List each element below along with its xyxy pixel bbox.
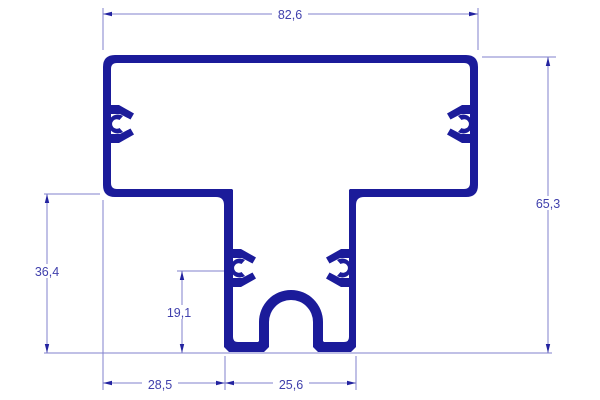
arrowhead-overall-height-top [546,57,550,66]
arrowhead-bottom-offset-left [103,381,112,385]
dim-left-height-label: 36,4 [35,265,59,279]
extension-lines [44,8,556,390]
technical-drawing: 82,6 65,3 36,4 19,1 28,5 25,6 [0,0,600,400]
profile-outline [103,55,478,352]
dim-inner-height-label: 19,1 [167,306,191,320]
arrowhead-left-height-top [45,194,49,203]
clip-box-right-icon [447,105,473,143]
clip-stem-left-icon [230,249,256,287]
arrowhead-overall-height-bottom [546,344,550,353]
arrowhead-stem-width-left [225,381,234,385]
dimension-labels: 82,6 65,3 36,4 19,1 28,5 25,6 [35,8,560,392]
arrowhead-inner-height-top [180,271,184,280]
clip-stem-right-icon [326,249,352,287]
dim-top-width-label: 82,6 [278,8,302,22]
arrowhead-top-width-right [469,12,478,16]
clip-box-left-icon [108,105,134,143]
arrowhead-left-height-bottom [45,344,49,353]
dim-stem-width-label: 25,6 [279,378,303,392]
arrowhead-top-width-left [103,12,112,16]
drawing-canvas: 82,6 65,3 36,4 19,1 28,5 25,6 [0,0,600,400]
arrowhead-inner-height-bottom [180,344,184,353]
dim-bottom-offset-label: 28,5 [148,378,172,392]
dim-overall-height-label: 65,3 [536,197,560,211]
arrowhead-bottom-offset-right [216,381,225,385]
arrowhead-stem-width-right [347,381,356,385]
